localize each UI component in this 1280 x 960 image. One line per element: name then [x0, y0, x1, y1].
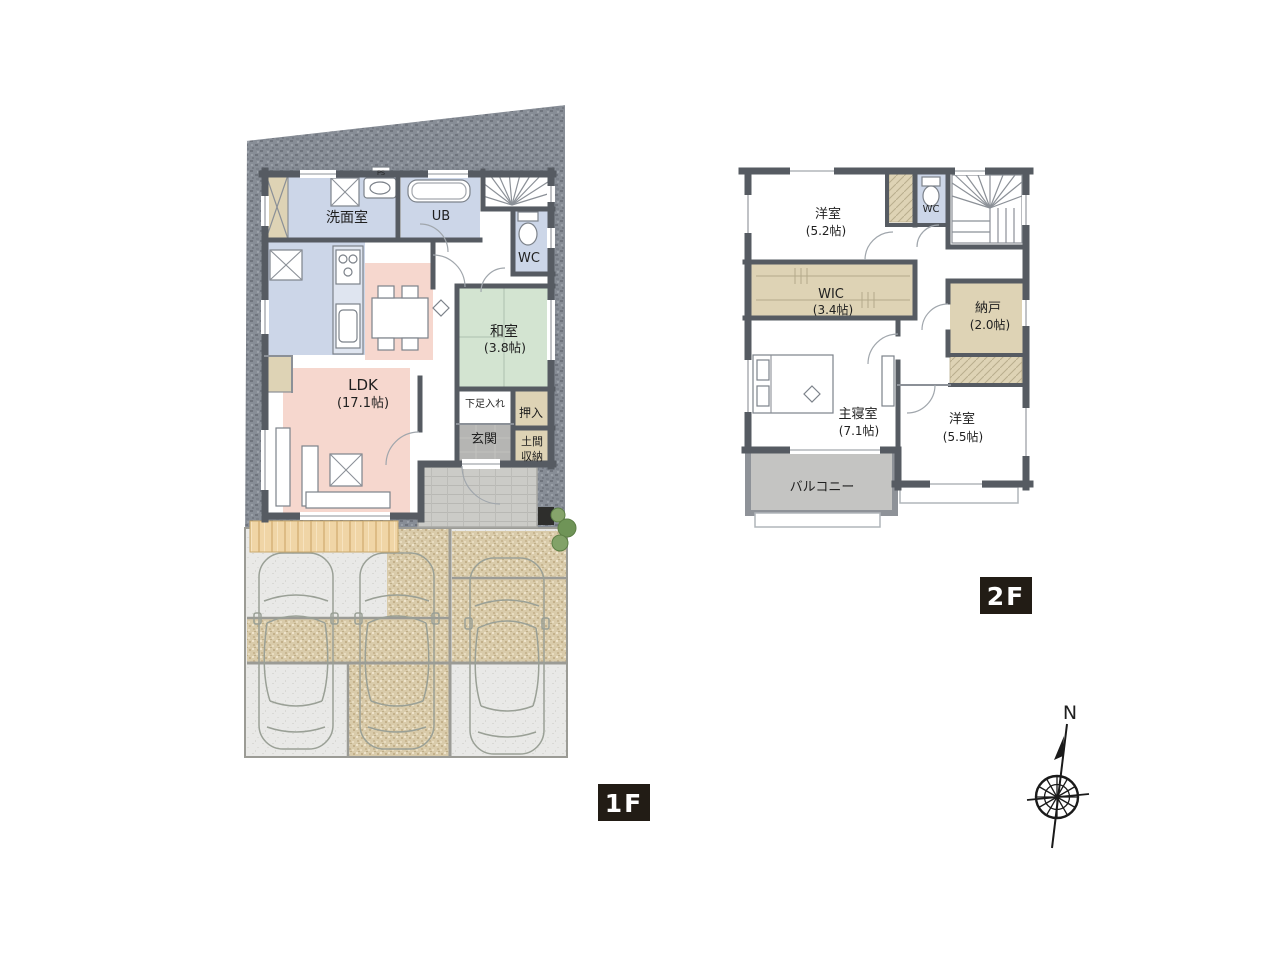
label-shushinshitsu-size: (7.1帖) — [839, 423, 879, 438]
gravel-patch — [349, 663, 450, 757]
label-yoshitsu55: 洋室 — [949, 411, 975, 427]
label-balcony: バルコニー — [790, 480, 855, 495]
label-yoshitsu52-size: (5.2帖) — [806, 223, 846, 238]
gravel-patch — [247, 618, 450, 663]
floorplan-2f: 洋室 (5.2帖) WC WIC (3.4帖) 納戸 (2.0帖) 主寝室 (7… — [742, 167, 1030, 527]
floor-badge-1f: 1F — [598, 784, 650, 821]
floor-badge-2f-text: 2F — [987, 582, 1025, 611]
floorplan-svg: 洗面室 UB PS WC 和室 (3.8帖) LDK (17.1帖) 下足入れ … — [0, 0, 1280, 960]
floorplan-page: 洗面室 UB PS WC 和室 (3.8帖) LDK (17.1帖) 下足入れ … — [0, 0, 1280, 960]
label-shushinshitsu: 主寝室 — [838, 406, 877, 422]
label-ldk: LDK — [348, 376, 379, 394]
floor-badge-1f-text: 1F — [605, 789, 643, 818]
label-wic-size: (3.4帖) — [813, 302, 853, 317]
label-wc-2f: WC — [923, 204, 940, 215]
closet-ldk — [265, 356, 292, 392]
label-ldk-size: (17.1帖) — [337, 396, 389, 411]
label-nando-size: (2.0帖) — [970, 317, 1010, 332]
label-washitsu-size: (3.8帖) — [484, 340, 526, 355]
closet-nando-south — [950, 355, 1022, 385]
label-doma-2: 収納 — [521, 450, 543, 463]
label-genkan: 玄関 — [471, 432, 497, 447]
label-senmenshitsu: 洗面室 — [326, 209, 368, 226]
label-doma-1: 土間 — [521, 435, 543, 448]
closet-yoshitsu52 — [889, 174, 913, 222]
label-washitsu: 和室 — [490, 323, 518, 340]
porch-roof-outline — [900, 487, 1018, 503]
balcony-ledge — [755, 513, 880, 527]
stairs-2f — [952, 175, 1022, 243]
label-getabako: 下足入れ — [465, 398, 505, 410]
label-nando: 納戸 — [975, 301, 1001, 316]
label-ub: UB — [432, 209, 450, 224]
compass-north-label: N — [1063, 702, 1077, 724]
floor-badge-2f: 2F — [980, 577, 1032, 614]
floorplan-1f: 洗面室 UB PS WC 和室 (3.8帖) LDK (17.1帖) 下足入れ … — [243, 104, 576, 758]
label-wic: WIC — [818, 287, 844, 302]
wood-deck — [250, 521, 398, 552]
label-yoshitsu52: 洋室 — [815, 206, 841, 222]
parking-area — [245, 528, 567, 757]
compass-icon: N — [1027, 702, 1089, 848]
label-wc-1f: WC — [518, 251, 540, 266]
label-ps: PS — [377, 169, 385, 177]
label-oshiire: 押入 — [519, 406, 543, 420]
label-yoshitsu55-size: (5.5帖) — [943, 429, 983, 444]
